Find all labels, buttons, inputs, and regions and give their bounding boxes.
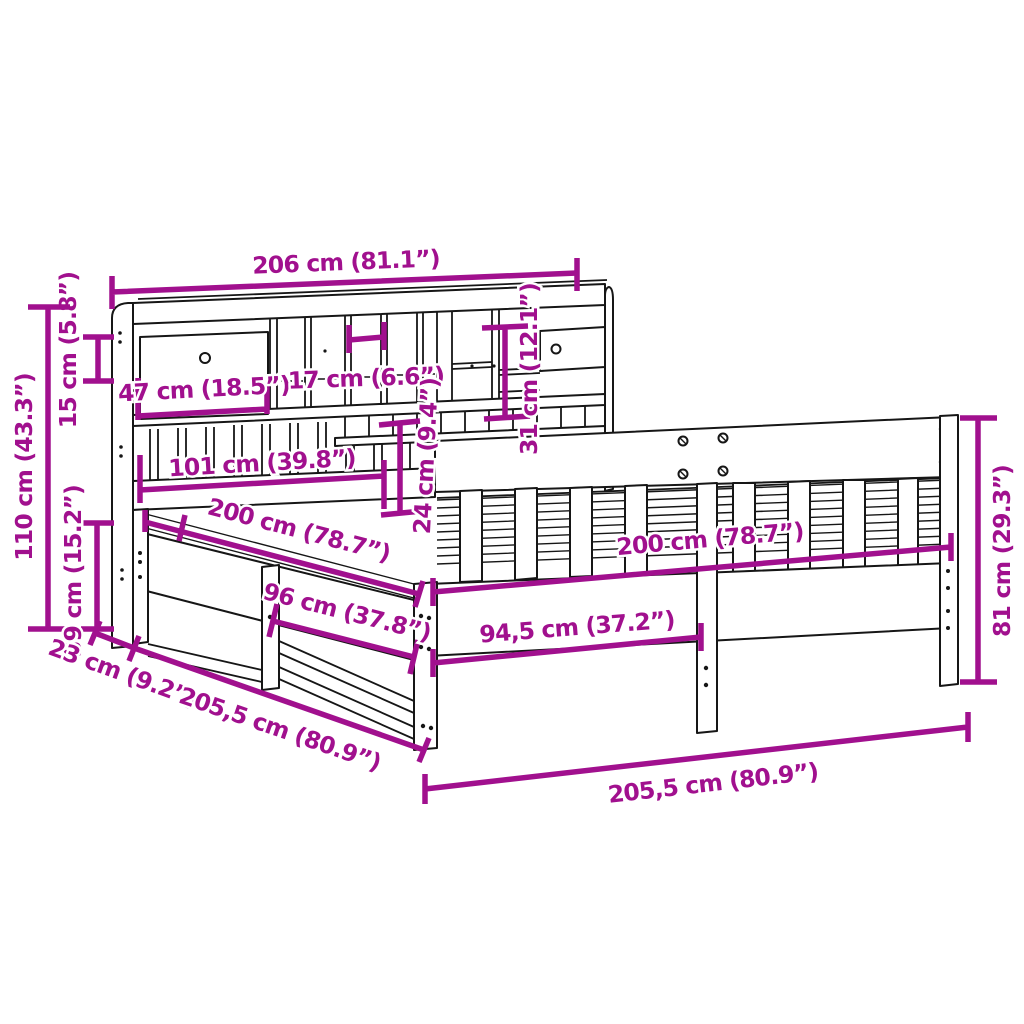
- headboard-left-panel: [112, 303, 133, 648]
- dim-label-headboard-height: 110 cm (43.3”): [10, 373, 38, 561]
- dim-label-headboard-lower-height: 39 cm (15.2”): [59, 485, 87, 657]
- dim-label-top-shelf-height: 15 cm (5.8”): [54, 272, 82, 428]
- bed-frame-diagram-canvas: 206 cm (81.1”) 47 cm (18.5”) 17 cm (6.6”…: [0, 0, 1024, 1024]
- rail-baluster: [460, 490, 482, 582]
- right-drawer-knob: [552, 345, 561, 354]
- dimension-side-rail-height: 81 cm (29.3”): [960, 418, 1016, 682]
- dim-label-headboard-width: 206 cm (81.1”): [252, 244, 441, 280]
- dim-label-slat-panel-height: 24 cm (9.4”): [408, 377, 444, 535]
- left-drawer-knob: [200, 353, 210, 363]
- dimension-slat-panel-height: 24 cm (9.4”): [379, 377, 444, 535]
- dim-label-shelf-compartment-height: 31 cm (12.1”): [515, 283, 543, 455]
- right-drawer-front: [540, 327, 605, 371]
- dimension-headboard-lower-height: 39 cm (15.2”): [59, 485, 114, 657]
- side-rail-assembly: [414, 415, 958, 750]
- dimension-top-shelf-height: 15 cm (5.8”): [54, 272, 114, 428]
- dimension-diagram: 206 cm (81.1”) 47 cm (18.5”) 17 cm (6.6”…: [0, 0, 1024, 1024]
- middle-front-leg: [697, 483, 717, 733]
- rail-baluster: [570, 487, 592, 577]
- dim-label-side-rail-height: 81 cm (29.3”): [988, 465, 1016, 637]
- dim-label-overall-length-side: 205,5 cm (80.9”): [176, 681, 385, 776]
- rail-baluster: [515, 488, 537, 580]
